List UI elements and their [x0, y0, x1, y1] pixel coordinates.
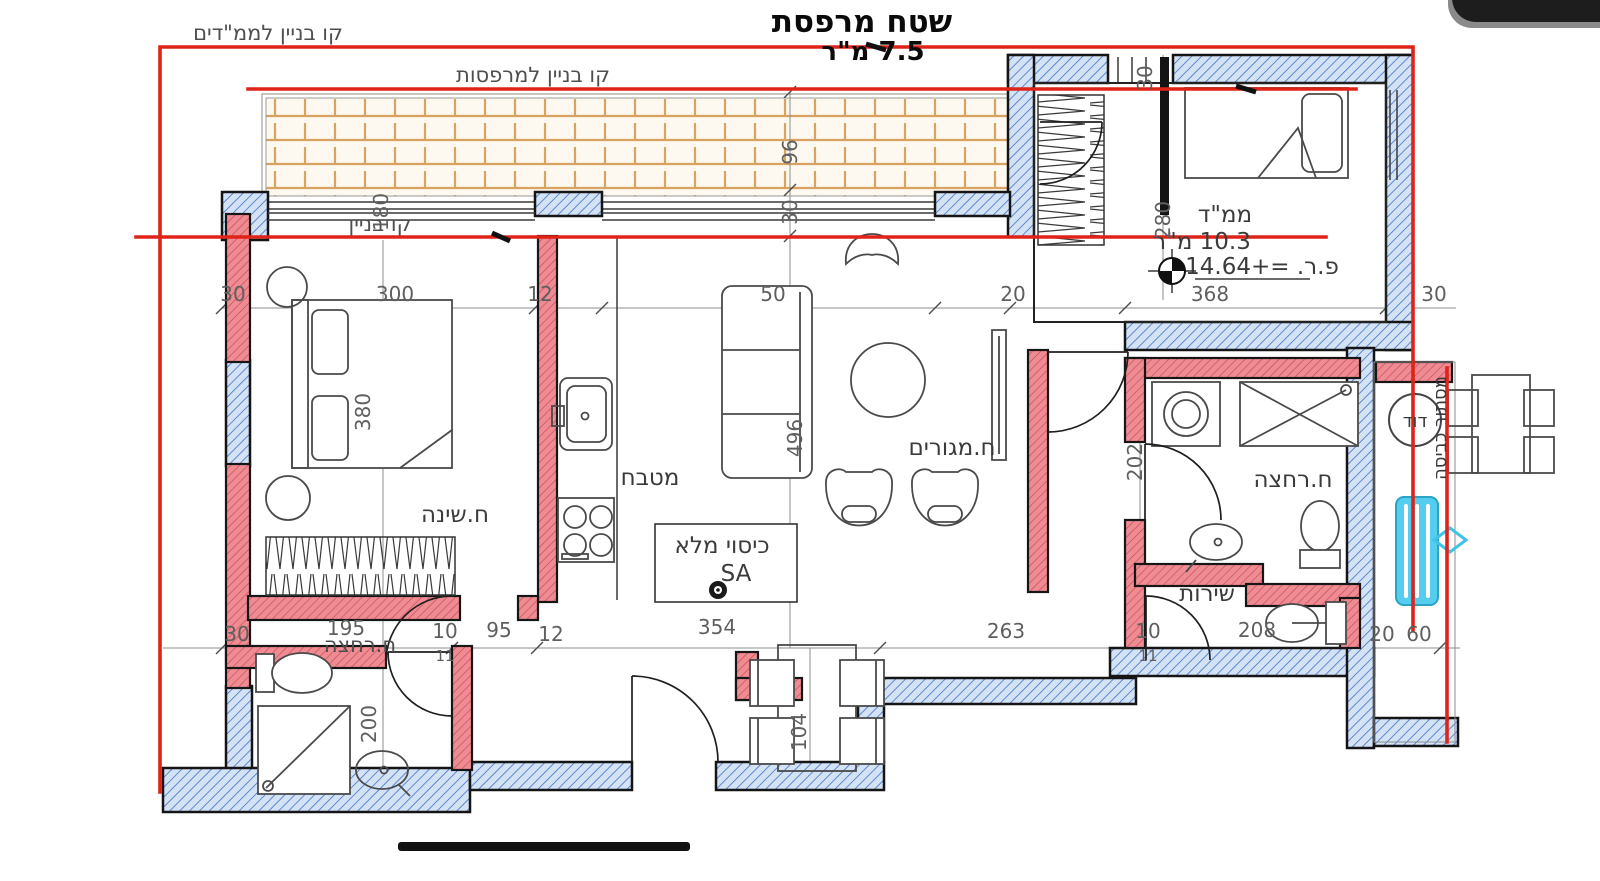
- armchair: [826, 469, 892, 525]
- dim-30-top-left: 30: [220, 282, 245, 306]
- dim-11-wc: 11: [1138, 647, 1157, 665]
- mamad-blast-door-post: [1160, 57, 1169, 215]
- title-line1: שטח מרפסת: [772, 4, 953, 40]
- label-mamad: ממ"ד: [1198, 202, 1252, 228]
- dim-10-bottom: 10: [432, 619, 457, 643]
- kitchen-sink: [552, 378, 612, 450]
- bathroom-toilet: [1300, 501, 1340, 568]
- label-bath: ח.רחצה: [1253, 467, 1332, 493]
- dim-30-bottom: 30: [224, 622, 249, 646]
- dim-368: 368: [1191, 282, 1229, 306]
- dim-20-bottom: 20: [1369, 622, 1394, 646]
- bathroom2-toilet: [256, 653, 332, 693]
- kitchen-fixtures: [552, 238, 617, 600]
- kitchen-stove: [558, 498, 614, 562]
- floor-plan-canvas: שטח מרפסת 7.5 מ"ר קו בניין לממ"דים קו בנ…: [0, 0, 1600, 881]
- label-kitchen: מטבח: [621, 465, 680, 491]
- corner-widget: [1448, 0, 1600, 28]
- dim-12-top: 12: [527, 282, 552, 306]
- label-wc: שירות: [1179, 581, 1235, 607]
- round-table: [851, 343, 925, 417]
- dim-496: 496: [783, 419, 807, 457]
- balcony-tiles: [266, 98, 1009, 196]
- dim-30-top-right: 30: [1421, 282, 1446, 306]
- bathroom2-shower: [258, 706, 350, 794]
- entry-door: [632, 676, 718, 762]
- label-laundry-screen: מסתור כביסה: [1430, 376, 1451, 480]
- title-line2: 7.5 מ"ר: [821, 37, 924, 67]
- label-living: ח.מגורים: [908, 435, 995, 461]
- dim-200: 200: [357, 705, 381, 743]
- mamad-bed: [1185, 88, 1348, 178]
- label-boiler: דוד: [1403, 411, 1428, 432]
- shower: [1240, 382, 1358, 446]
- label-sa: SA: [721, 561, 752, 587]
- hall-door: [1048, 352, 1128, 432]
- dim-60: 60: [1406, 622, 1431, 646]
- scale-bar: [398, 842, 690, 851]
- dim-300: 300: [376, 282, 414, 306]
- dim-208: 208: [1238, 618, 1276, 642]
- armchair: [912, 469, 978, 525]
- dim-20-top: 20: [1000, 282, 1025, 306]
- label-line-balconies: קו בניין למרפסות: [456, 63, 610, 87]
- dim-104: 104: [787, 713, 811, 751]
- dim-354: 354: [698, 615, 736, 639]
- washing-machine: [1152, 382, 1220, 446]
- dim-50: 50: [760, 282, 785, 306]
- dim-280: 280: [1151, 201, 1175, 239]
- label-bedroom: ח.שינה: [421, 502, 489, 528]
- dim-263: 263: [987, 619, 1025, 643]
- nightstand: [266, 476, 310, 520]
- nightstand: [267, 267, 307, 307]
- dim-10-wc: 10: [1135, 619, 1160, 643]
- outdoor-dining-set: [1448, 375, 1554, 473]
- balcony: [262, 94, 1013, 209]
- bedroom-bed: [292, 300, 452, 468]
- dim-195: 195: [327, 616, 365, 640]
- bathroom-door: [1145, 444, 1221, 520]
- bedroom-wardrobe: [266, 537, 455, 595]
- dim-180-balcony: 180: [369, 193, 393, 231]
- dim-202: 202: [1123, 443, 1147, 481]
- label-line-mamadim: קו בניין לממ"דים: [193, 21, 343, 45]
- dim-11-bottom: 11: [435, 647, 454, 665]
- dim-12-bottom: 12: [538, 622, 563, 646]
- ac-unit: [1396, 497, 1438, 605]
- label-mamad-level: פ.ר. =+14.64: [1185, 254, 1339, 280]
- dim-30-balcony: 30: [778, 199, 802, 224]
- mamad-wardrobe: [1038, 95, 1104, 245]
- dim-96: 96: [778, 139, 802, 164]
- dim-380: 380: [351, 393, 375, 431]
- dim-95: 95: [486, 618, 511, 642]
- label-full-cover: כיסוי מלא: [674, 533, 769, 559]
- dim-30-mamad-entry: 30: [1133, 65, 1157, 90]
- wc-toilet: [1266, 602, 1346, 644]
